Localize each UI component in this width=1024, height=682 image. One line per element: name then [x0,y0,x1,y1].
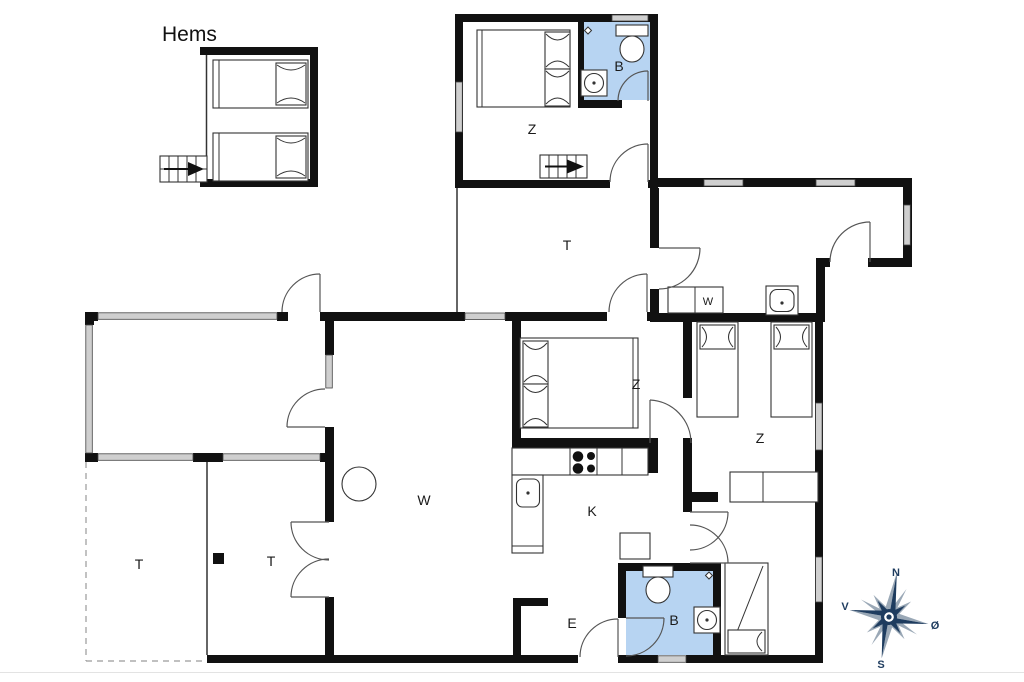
desk-right-bedroom [730,472,818,502]
window [704,180,743,187]
bed-diagonal-right [725,563,768,655]
compass-north-label: N [892,567,900,579]
label-bedroom-top: Z [528,121,537,137]
label-living-room: W [417,492,431,508]
window [816,403,823,450]
kitchen-counter [512,448,650,559]
door-sunroom-exterior [282,274,320,312]
loft-bed-1 [213,60,308,108]
laundry-sink [766,286,798,315]
shower-fixture-top [581,70,607,96]
loft-bed-2 [213,133,308,181]
stairs-top-bedroom [540,155,587,178]
kitchen-cabinet [620,533,650,559]
room-labels: Hems Z B T Z Z W K E B T T W [135,23,765,631]
window [612,15,648,21]
stove-burner [587,452,595,460]
double-bed-top [477,30,570,107]
terrace-dashed-boundary [86,462,207,661]
round-table [342,467,376,501]
shower-fixture-bottom [694,607,720,633]
window [658,656,686,663]
compass-south-label: S [877,659,884,671]
window [326,355,333,388]
window [86,325,93,453]
window [465,313,505,320]
door-hall-to-hallway [659,248,700,289]
label-bedroom-right: Z [756,430,765,446]
label-terrace-right: T [267,553,276,569]
stove-burner [573,451,584,462]
compass-rose: N S V Ø [839,565,939,671]
furniture [160,25,818,655]
label-washer: W [703,296,714,308]
stove-burner [587,465,595,473]
label-bathroom-bottom: B [669,612,678,628]
double-door-bedroom-right [690,512,728,563]
single-bed-right-2 [771,322,812,417]
window [223,454,320,461]
window [904,205,911,245]
window [816,557,823,602]
door-hallway-to-bedroom-middle [609,274,647,312]
label-terrace-left: T [135,556,144,572]
compass-east-label: Ø [931,620,940,632]
toilet-bottom [643,566,673,603]
french-doors-terrace [291,522,329,597]
label-bathroom-top: B [614,58,623,74]
terrace-post [213,553,224,564]
label-hallway: T [563,237,572,253]
double-bed-middle [520,338,638,428]
door-bedroom-middle-rear [650,400,691,443]
window [816,180,855,187]
loft-title: Hems [162,23,217,46]
door-hall-exterior [830,222,870,262]
label-kitchen: K [587,503,597,519]
washer-cabinet [668,287,723,313]
stove-burner [573,463,584,474]
floor-plan: Hems Z B T Z Z W K E B T T W [0,0,1024,682]
label-bedroom-middle: Z [632,376,641,392]
compass-west-label: V [841,601,849,613]
loft-stairs [160,156,207,182]
window [98,313,277,320]
door-entry-exterior [580,619,618,657]
single-bed-right-1 [697,322,738,417]
window [98,454,193,461]
label-entry: E [567,615,576,631]
window [456,82,463,132]
door-bedroom-top [610,144,648,182]
door-sunroom-to-living [287,389,325,427]
